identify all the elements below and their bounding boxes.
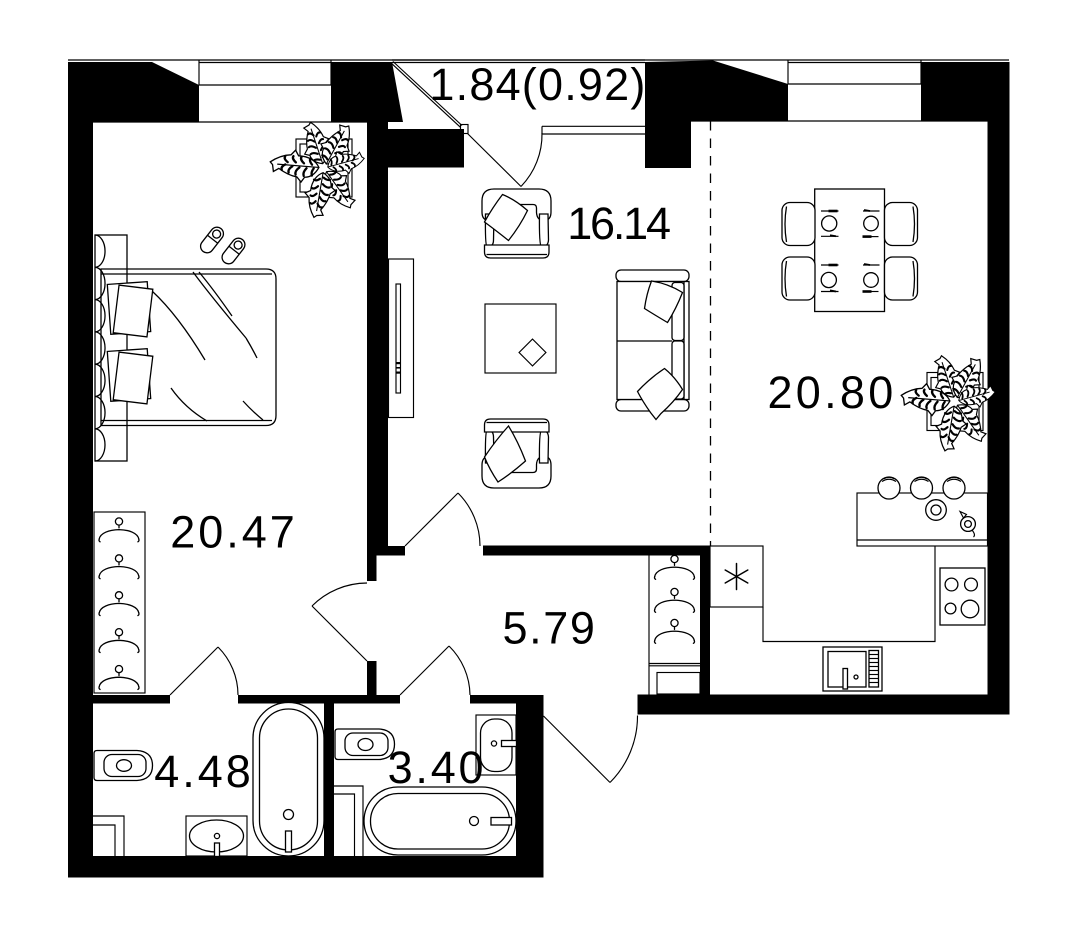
svg-text:20.47: 20.47 [170,507,298,558]
svg-text:5.79: 5.79 [503,603,597,654]
svg-text:3.40: 3.40 [388,742,487,793]
svg-text:4.48: 4.48 [154,746,254,797]
svg-text:1.84(0.92): 1.84(0.92) [429,59,646,110]
svg-text:16.14: 16.14 [567,198,670,249]
svg-text:20.80: 20.80 [767,367,896,418]
